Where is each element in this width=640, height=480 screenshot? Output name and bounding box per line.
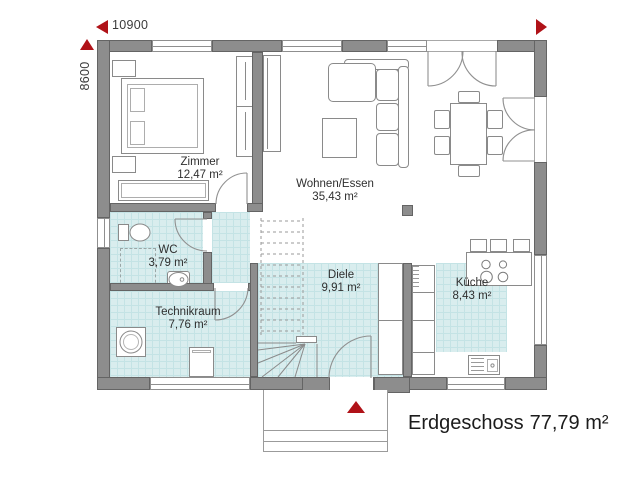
shelf-line: [267, 58, 268, 149]
entrance-arrow-icon: [347, 401, 365, 413]
wall-right: [534, 162, 547, 255]
window-wc: [97, 218, 110, 248]
window-living-1: [282, 40, 342, 52]
bar-stool: [490, 239, 507, 252]
orientation-arrow-icon: [536, 19, 547, 35]
dim-height-label: 8600: [78, 54, 94, 98]
appliance: [189, 347, 214, 377]
porch-step: [263, 430, 388, 431]
wall-top: [212, 40, 282, 52]
dining-chair: [487, 136, 503, 155]
stair-newel: [296, 336, 317, 343]
window-kitchen-east: [534, 255, 547, 345]
wall-top: [342, 40, 387, 52]
floor-plan: Zimmer 12,47 m² Wohnen/Essen 35,43 m² WC…: [0, 0, 640, 480]
dining-table: [450, 103, 487, 165]
wardrobe-handle: [245, 62, 246, 100]
pillow: [130, 88, 145, 112]
wall-kitchen-west: [403, 263, 412, 377]
floor-title: Erdgeschoss77,79 m²: [408, 412, 609, 435]
bar-stool: [513, 239, 530, 252]
entrance-porch: [263, 390, 388, 452]
wardrobe-handle: [245, 112, 246, 150]
dining-chair: [434, 110, 450, 129]
dining-chair: [434, 136, 450, 155]
sofa-cushion: [376, 103, 399, 131]
wall-technikraum-north: [110, 283, 214, 291]
dim-arrow-up-icon: [80, 39, 94, 50]
cabinet-divider: [378, 320, 403, 321]
wall-left: [97, 248, 110, 390]
wall-zimmer-south: [110, 203, 216, 212]
coffee-table: [322, 118, 357, 158]
sofa-cushion: [376, 69, 399, 101]
dining-chair: [458, 91, 480, 103]
room-zimmer-label: Zimmer 12,47 m²: [150, 156, 250, 182]
dresser: [118, 180, 209, 201]
sofa-back: [398, 66, 409, 168]
porch-step: [263, 441, 388, 442]
nightstand: [112, 156, 136, 173]
chimney: [402, 205, 413, 216]
sink-basin: [487, 359, 498, 372]
wall-zimmer-east: [252, 52, 263, 205]
room-wc-label: WC 3,79 m²: [138, 244, 198, 270]
shelf: [263, 55, 281, 152]
wall-stair-west: [250, 263, 258, 377]
pillow: [130, 121, 145, 145]
sofa-seat: [328, 63, 376, 102]
dim-arrow-left-icon: [96, 20, 108, 34]
room-kueche-label: Küche 8,43 m²: [422, 277, 522, 303]
dining-chair: [487, 110, 503, 129]
bar-stool: [470, 239, 487, 252]
terrace-door-opening: [427, 40, 497, 52]
dining-door-opening: [534, 97, 547, 162]
wall-bottom: [97, 377, 150, 390]
wall-right: [534, 40, 547, 97]
room-diele-label: Diele 9,91 m²: [291, 269, 391, 295]
wall-zimmer-south-pier: [247, 203, 263, 212]
window-living-2: [387, 40, 427, 52]
sink-drainer: [471, 358, 484, 372]
toilet-tank: [118, 224, 129, 241]
wall-bottom: [505, 377, 547, 390]
room-wohnen-label: Wohnen/Essen 35,43 m²: [275, 178, 395, 204]
wall-left: [97, 40, 110, 218]
sofa-cushion: [376, 133, 399, 166]
window-kitchen-south: [447, 377, 505, 390]
wall-wc-east: [203, 212, 212, 219]
cabinet-shelf-hatch: [413, 266, 419, 290]
window-technikraum: [150, 377, 250, 390]
window-zimmer: [152, 40, 212, 52]
room-technikraum-label: Technikraum 7,76 m²: [133, 306, 243, 332]
cabinet-divider: [412, 320, 435, 321]
cabinet-divider: [412, 352, 435, 353]
dim-width-label: 10900: [112, 18, 148, 32]
dining-chair: [458, 165, 480, 177]
corridor-floor-tile: [212, 212, 250, 283]
nightstand: [112, 60, 136, 77]
